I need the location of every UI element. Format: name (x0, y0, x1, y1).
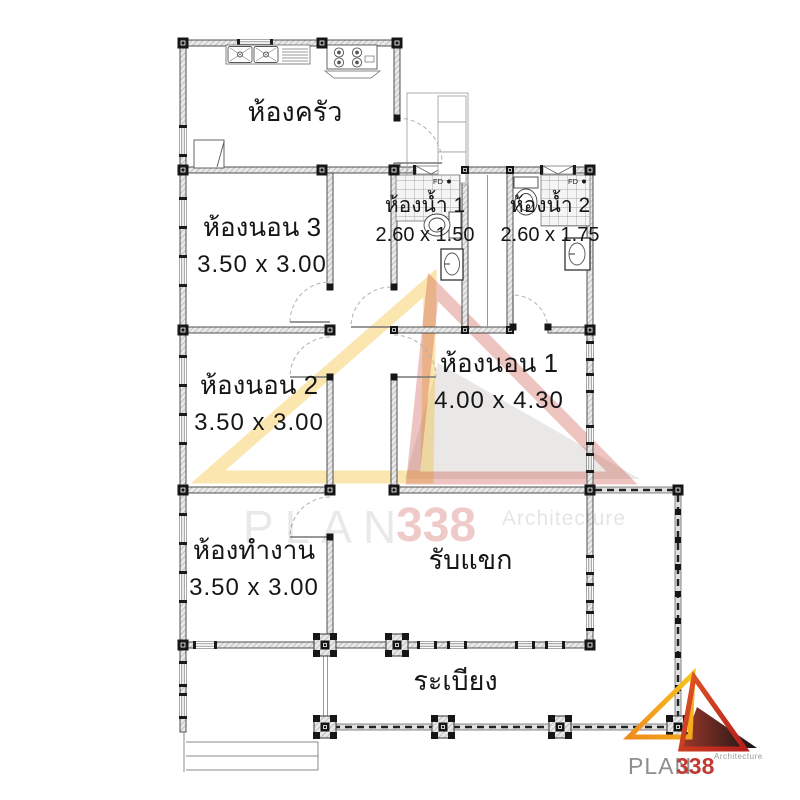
room-dimensions: 4.00 x 4.30 (408, 387, 590, 415)
room-name: ห้องนอน 2 (175, 371, 343, 400)
room-label-kitchen: ห้องครัว (205, 98, 385, 128)
room-name: ห้องน้ำ 2 (500, 194, 600, 217)
room-label-bathroom2: ห้องน้ำ 2 2.60 x 1.75 (500, 194, 600, 247)
room-name: ห้องครัว (205, 98, 385, 128)
room-dimensions: 2.60 x 1.50 (374, 224, 476, 247)
room-dimensions: 2.60 x 1.75 (500, 224, 600, 247)
logo-triangles (629, 674, 757, 749)
room-label-bedroom1: ห้องนอน 1 4.00 x 4.30 (408, 349, 590, 415)
kitchen-stove (325, 45, 380, 78)
room-name: ห้องนอน 1 (408, 349, 590, 378)
kitchen-sink (226, 45, 310, 64)
room-dimensions: 3.50 x 3.00 (170, 574, 338, 602)
fd-label-2: FD (568, 177, 579, 186)
room-dimensions: 3.50 x 3.00 (175, 409, 343, 437)
floor-plan-page: FD FD (0, 0, 800, 800)
door-arc-kitchen-back (397, 118, 442, 163)
room-dimensions: 3.50 x 3.00 (178, 251, 346, 279)
porch-steps (184, 653, 328, 772)
bathroom1-basin (441, 249, 463, 280)
room-label-bedroom2: ห้องนอน 2 3.50 x 3.00 (175, 371, 343, 437)
room-label-office: ห้องทำงาน 3.50 x 3.00 (170, 536, 338, 602)
room-label-bathroom1: ห้องน้ำ 1 2.60 x 1.50 (374, 194, 476, 247)
room-label-porch: ระเบียง (383, 667, 528, 697)
logo-architecture-text: Architecture (714, 752, 763, 761)
door-arc-bedroom3 (290, 282, 330, 322)
room-name: ห้องน้ำ 1 (374, 194, 476, 217)
kitchen-fridge (194, 140, 224, 168)
room-name: ห้องนอน 3 (178, 213, 346, 242)
room-name: รับแขก (398, 546, 543, 576)
room-label-living: รับแขก (398, 546, 543, 576)
door-arc-office (290, 497, 330, 537)
room-label-bedroom3: ห้องนอน 3 3.50 x 3.00 (178, 213, 346, 279)
door-arc-bathroom2 (513, 295, 548, 330)
room-name: ระเบียง (383, 667, 528, 697)
logo-number-text: 338 (676, 753, 714, 780)
fd-label-1: FD (433, 177, 444, 186)
room-name: ห้องทำงาน (170, 536, 338, 565)
